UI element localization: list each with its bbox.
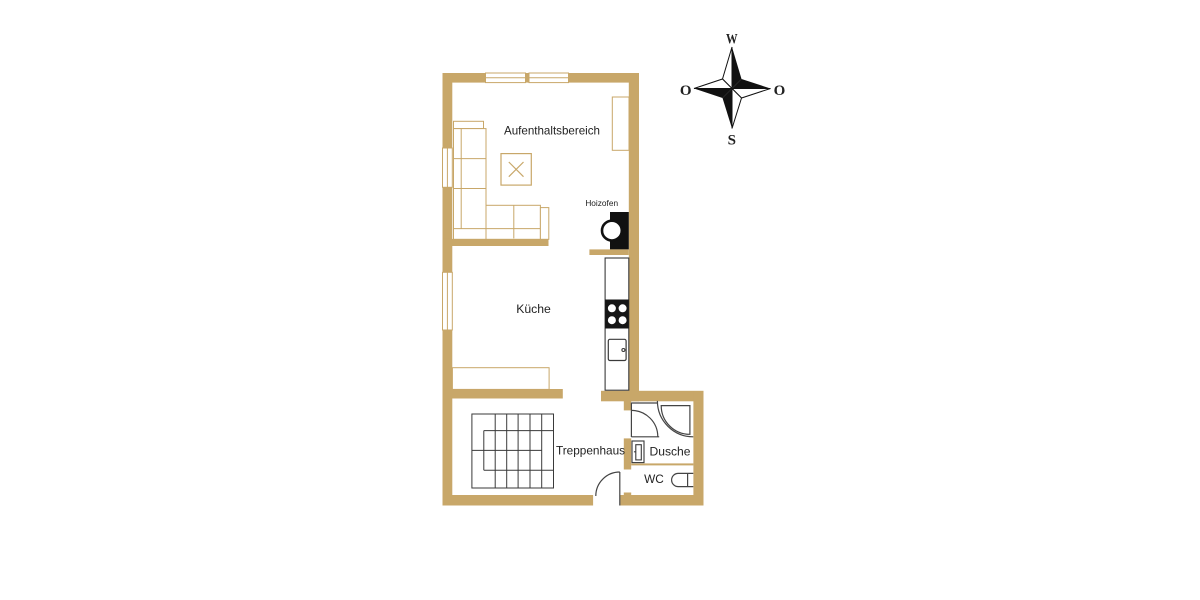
svg-text:Dusche: Dusche (649, 444, 690, 458)
svg-text:S: S (728, 133, 736, 149)
svg-text:O: O (680, 83, 692, 99)
svg-text:Treppenhaus: Treppenhaus (556, 444, 625, 458)
svg-text:W: W (726, 32, 738, 48)
svg-text:Hoizofen: Hoizofen (585, 198, 618, 208)
svg-text:O: O (774, 83, 786, 99)
svg-text:WC: WC (644, 472, 664, 486)
svg-text:Aufenthaltsbereich: Aufenthaltsbereich (504, 125, 600, 138)
svg-text:Küche: Küche (516, 302, 551, 316)
